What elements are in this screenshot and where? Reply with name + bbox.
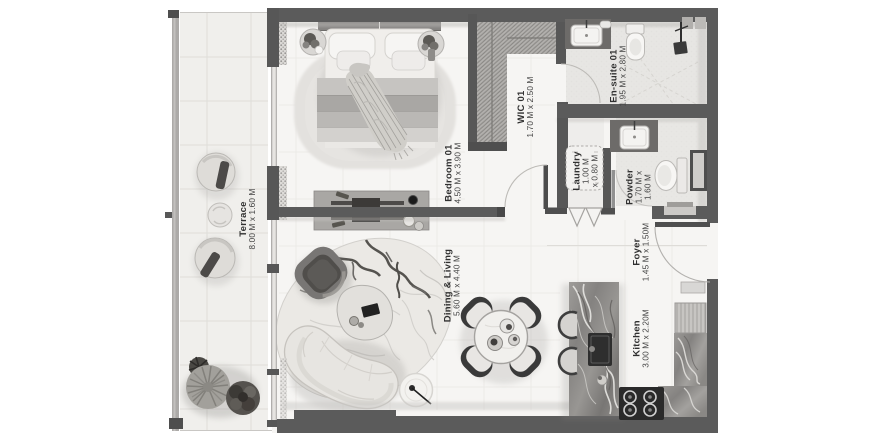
svg-text:1.95 M x 2.80 M: 1.95 M x 2.80 M (618, 46, 627, 107)
svg-text:1.60 M: 1.60 M (643, 174, 652, 200)
svg-text:4.50 M x 3.90 M: 4.50 M x 3.90 M (453, 143, 462, 204)
svg-text:1.70 M x 2.50 M: 1.70 M x 2.50 M (526, 77, 535, 138)
svg-text:1.00 M: 1.00 M (581, 158, 590, 184)
svg-text:3.00 M x 2.20M: 3.00 M x 2.20M (641, 309, 650, 368)
svg-text:1.70 M x: 1.70 M x (634, 171, 643, 204)
svg-text:x 0.80 M: x 0.80 M (590, 155, 599, 188)
svg-text:8.00 M x 1.60 M: 8.00 M x 1.60 M (248, 189, 257, 250)
svg-text:5.60 M x 4.40 M: 5.60 M x 4.40 M (453, 255, 462, 316)
svg-text:1.45 M x 1.50M: 1.45 M x 1.50M (641, 223, 650, 282)
